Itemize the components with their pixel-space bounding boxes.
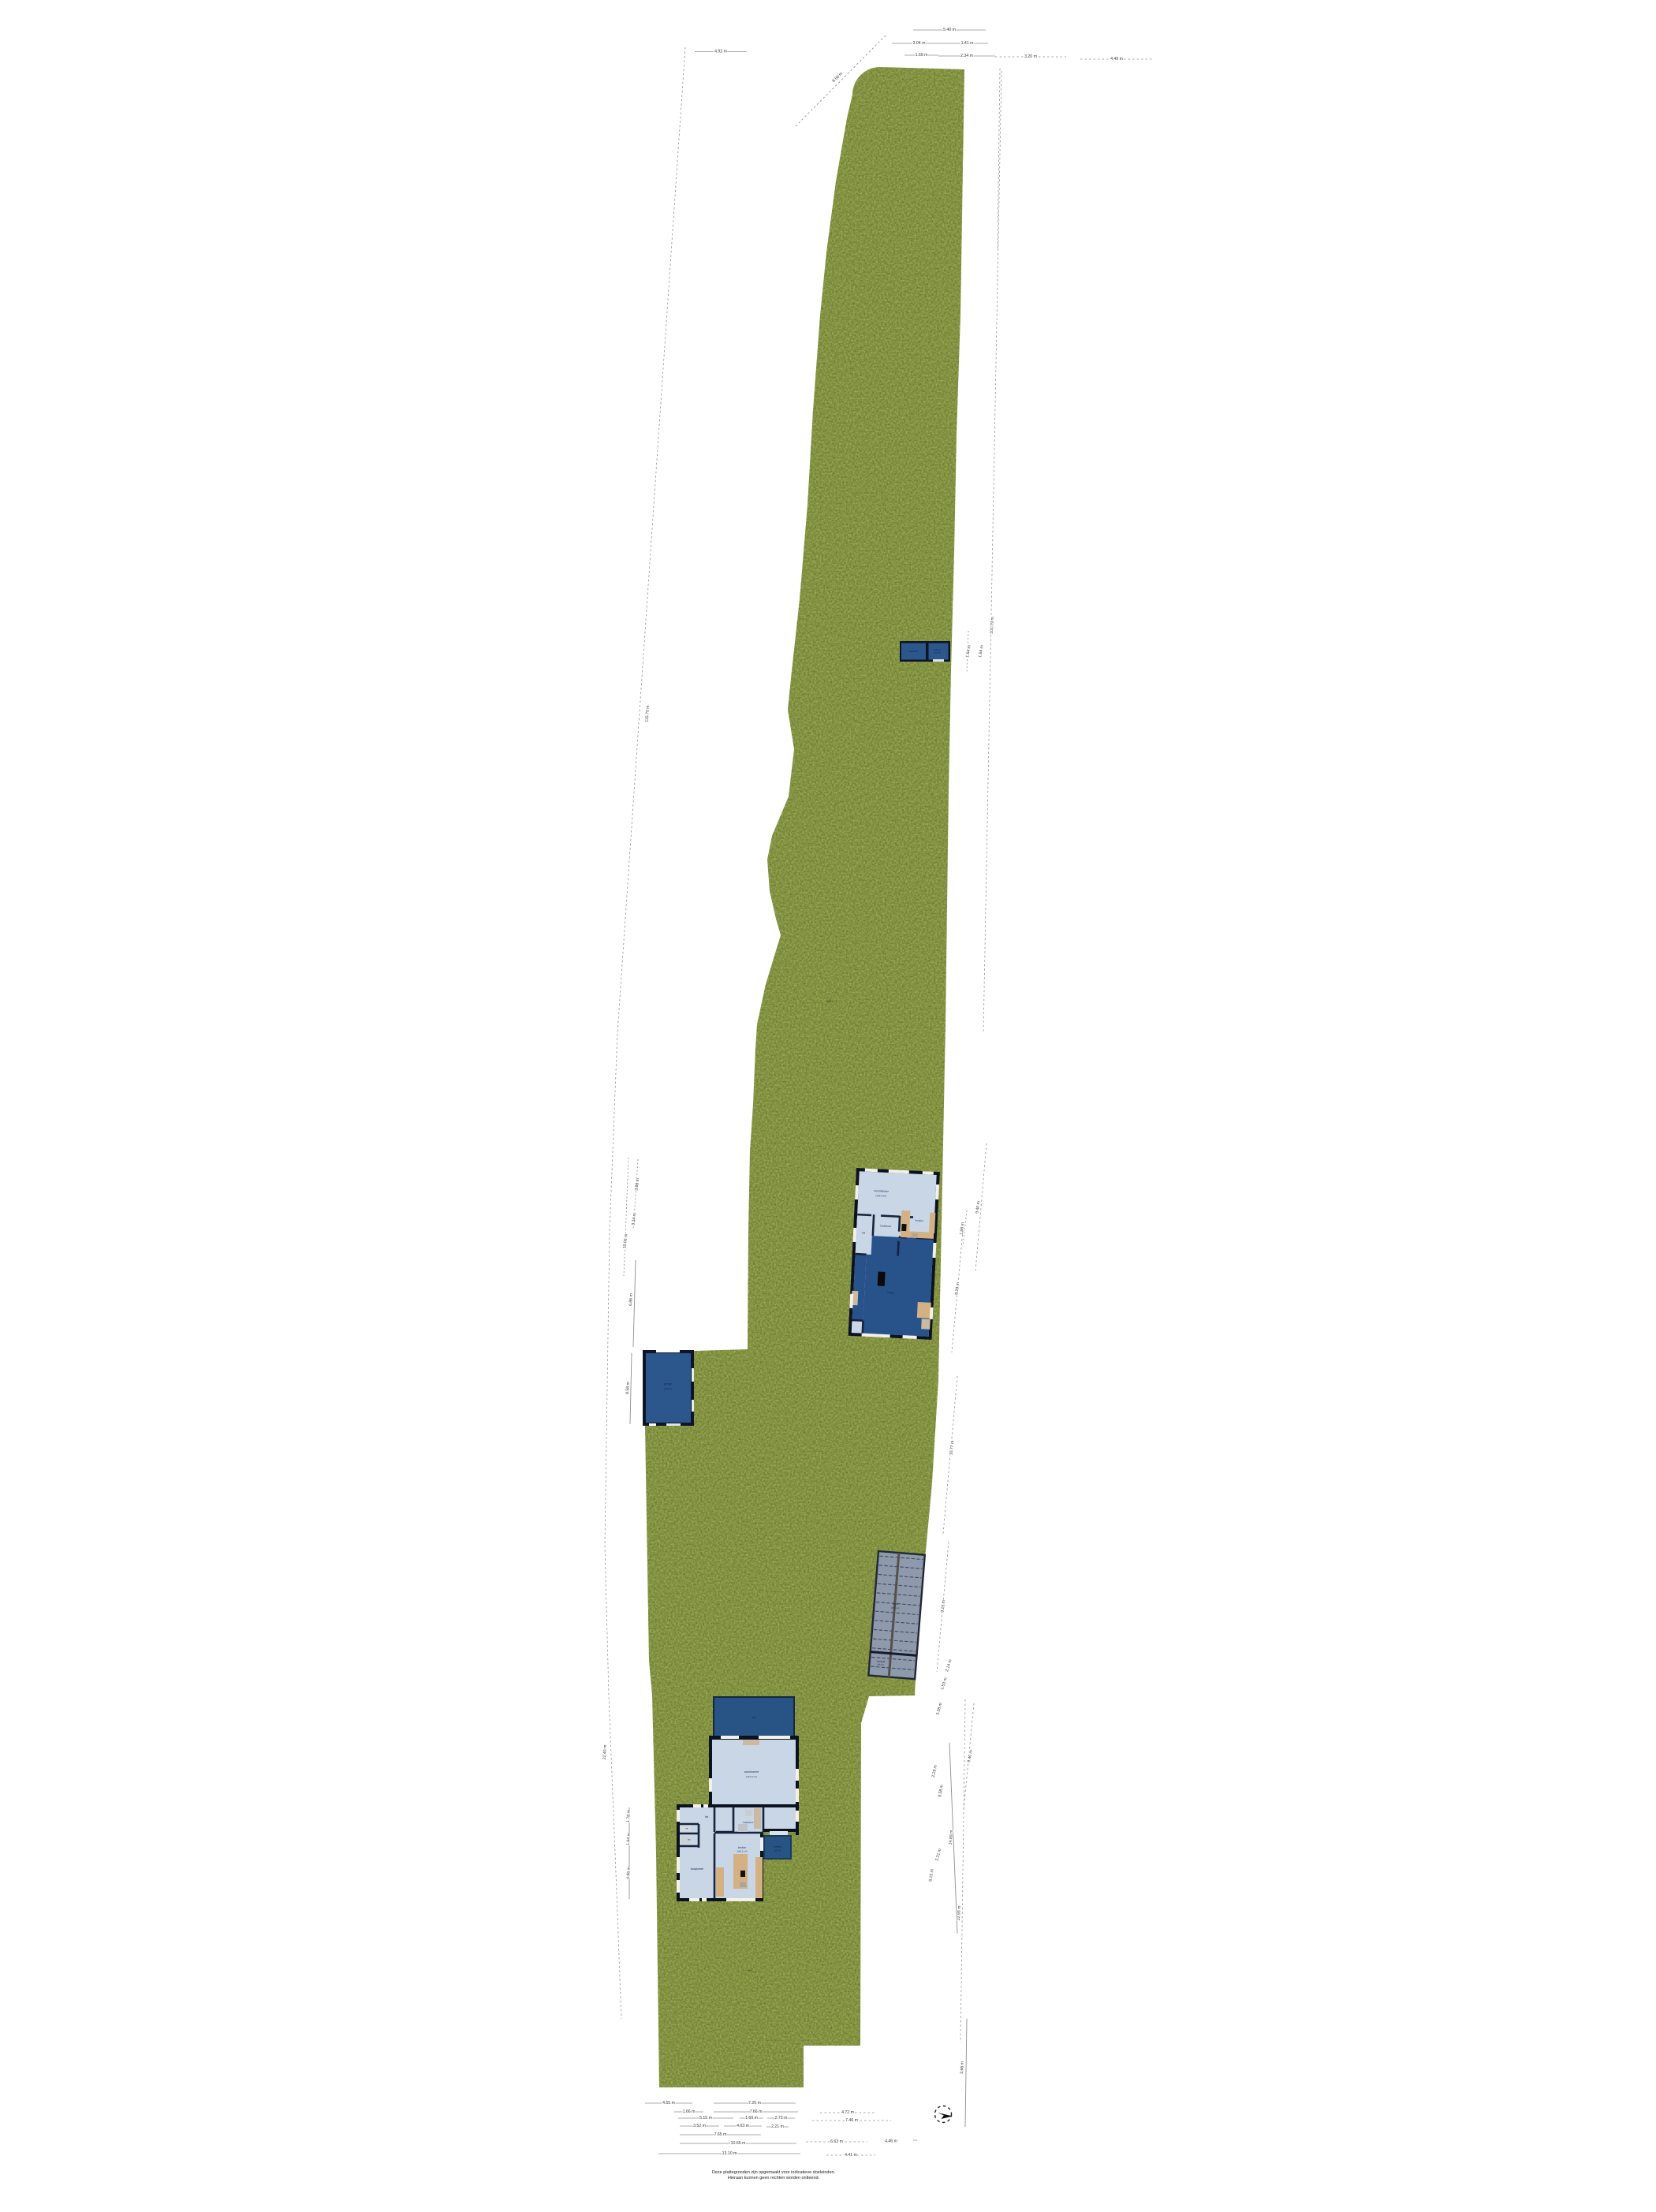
svg-text:22.93 m: 22.93 m	[957, 1906, 962, 1921]
svg-text:3.04 m: 3.04 m	[913, 41, 926, 46]
svg-text:badkamer: badkamer	[743, 1821, 753, 1824]
svg-text:5.15 m: 5.15 m	[699, 2116, 712, 2121]
svg-text:(±7m²): (±7m²)	[934, 651, 941, 655]
svg-text:(±27.3 m²): (±27.3 m²)	[746, 1775, 757, 1778]
svg-text:erf: erf	[752, 1716, 755, 1719]
svg-text:woonkamer: woonkamer	[744, 1770, 759, 1774]
svg-text:4.41 m: 4.41 m	[845, 2153, 857, 2158]
svg-text:13.10 m: 13.10 m	[722, 2151, 737, 2156]
svg-text:3.52 m: 3.52 m	[693, 2124, 706, 2128]
svg-text:Hieraan kunnen geen rechten wo: Hieraan kunnen geen rechten worden ontle…	[728, 2176, 820, 2180]
svg-text:10.66 m: 10.66 m	[731, 2141, 746, 2146]
svg-text:(±8 m²): (±8 m²)	[877, 1662, 884, 1666]
svg-text:(±25.5 m²): (±25.5 m²)	[875, 1194, 886, 1198]
svg-text:4.55 m: 4.55 m	[662, 2101, 675, 2106]
svg-text:entree: entree	[774, 1845, 781, 1848]
svg-text:3.20 m: 3.20 m	[1024, 54, 1037, 59]
svg-text:101.79 m: 101.79 m	[990, 617, 995, 634]
svg-text:2.21 m: 2.21 m	[771, 2124, 784, 2129]
svg-text:3.66 m: 3.66 m	[960, 2061, 965, 2074]
svg-text:(±28m²): (±28m²)	[664, 1387, 672, 1390]
svg-text:22.40 m: 22.40 m	[602, 1745, 608, 1760]
svg-text:(±65 m²): (±65 m²)	[891, 1606, 900, 1610]
svg-text:4.92 m: 4.92 m	[714, 49, 727, 54]
svg-text:keuken: keuken	[738, 1846, 747, 1849]
svg-text:7.46 m: 7.46 m	[845, 2118, 858, 2123]
svg-text:(±15.2 m²): (±15.2 m²)	[737, 1850, 748, 1853]
svg-text:4.46 m: 4.46 m	[885, 2139, 897, 2143]
svg-text:1.69 m: 1.69 m	[916, 53, 928, 58]
svg-text:keuken: keuken	[916, 1219, 924, 1223]
svg-text:tuin: tuin	[826, 999, 833, 1003]
svg-text:(±6 m²): (±6 m²)	[774, 1849, 781, 1852]
svg-text:Deze plattegronden zijn opgema: Deze plattegronden zijn opgemaakt voor i…	[712, 2170, 836, 2175]
svg-text:wc: wc	[688, 1838, 691, 1841]
svg-text:4.96 m: 4.96 m	[626, 1867, 632, 1879]
svg-text:8.58 m: 8.58 m	[625, 1382, 631, 1394]
svg-text:7.66 m: 7.66 m	[750, 2109, 763, 2114]
svg-text:badkamer: badkamer	[880, 1224, 892, 1228]
svg-text:schuur: schuur	[934, 648, 941, 651]
svg-text:garage: garage	[664, 1382, 673, 1386]
svg-text:7.20 m: 7.20 m	[748, 2101, 761, 2106]
svg-text:1.64 m: 1.64 m	[626, 1833, 632, 1845]
svg-text:1.41 m: 1.41 m	[961, 41, 974, 46]
svg-text:4.49 m: 4.49 m	[1110, 57, 1123, 62]
svg-text:veranda: veranda	[908, 650, 918, 653]
svg-text:1.66 m: 1.66 m	[683, 2109, 696, 2114]
svg-text:hal: hal	[705, 1815, 709, 1818]
svg-text:4.72 m: 4.72 m	[841, 2110, 854, 2115]
svg-text:6.86 m: 6.86 m	[628, 1293, 634, 1306]
svg-text:1.78 m: 1.78 m	[626, 1810, 632, 1822]
svg-text:oprit: oprit	[893, 1602, 898, 1606]
svg-text:5.40 m: 5.40 m	[943, 28, 956, 32]
svg-text:2.34 m: 2.34 m	[960, 54, 973, 58]
svg-text:terras: terras	[887, 1291, 894, 1294]
svg-text:hal: hal	[862, 1231, 866, 1234]
svg-text:1.60 m: 1.60 m	[745, 2116, 758, 2121]
svg-text:2.73 m: 2.73 m	[775, 2116, 788, 2121]
svg-text:4.63 m: 4.63 m	[737, 2124, 749, 2128]
svg-text:6.63 m: 6.63 m	[830, 2139, 843, 2144]
svg-text:slaapkamer: slaapkamer	[691, 1867, 704, 1871]
svg-text:7.65 m: 7.65 m	[714, 2132, 727, 2137]
